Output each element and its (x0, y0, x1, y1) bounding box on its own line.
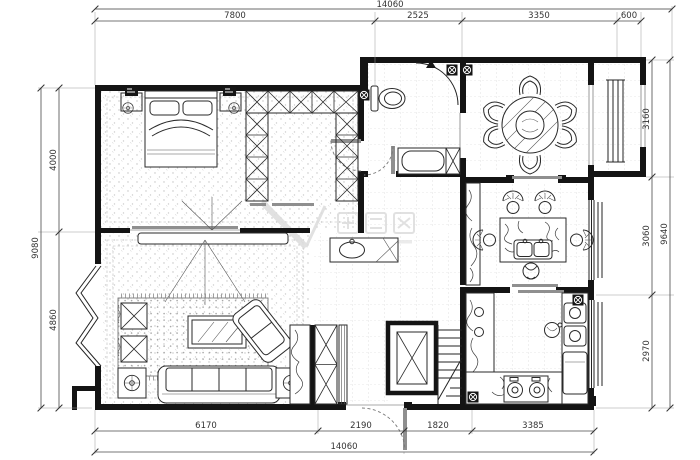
floor-plan-drawing: 14060 7800 2525 3350 600 6170 2190 1820 … (0, 0, 700, 460)
stove (504, 376, 548, 402)
floor-drain-icon (468, 392, 479, 403)
double-bed (145, 91, 217, 167)
floor-drain-icon (447, 65, 458, 76)
floor-drain-icon (573, 295, 584, 306)
dim-bottom: 6170 2190 1820 3385 14060 (92, 410, 598, 455)
dim-label: 3385 (522, 421, 544, 431)
bedroom-floor (101, 91, 358, 228)
refrigerator (563, 352, 587, 394)
island-table (500, 218, 566, 262)
dim-label: 2970 (642, 340, 652, 362)
display-cabinet (290, 325, 310, 404)
dim-label: 2190 (350, 421, 372, 431)
dim-label: 2525 (407, 11, 429, 21)
island-sliding-door (512, 176, 562, 179)
balcony-floor (594, 63, 640, 171)
side-cabinet-marble (466, 183, 480, 285)
dim-label: 3060 (642, 225, 652, 247)
staircase (438, 325, 462, 404)
vanity-sink (330, 238, 398, 262)
dim-label: 14060 (330, 442, 357, 452)
dim-label: 4000 (49, 149, 59, 171)
dim-label: 6170 (195, 421, 217, 431)
bedroom-sliding-door (130, 226, 240, 230)
sofa (158, 366, 280, 403)
dim-label: 7800 (224, 11, 246, 21)
bay-window (76, 264, 103, 366)
foyer-floor (347, 325, 388, 404)
dim-label: 14060 (376, 0, 403, 10)
floor-drain-icon (462, 65, 473, 76)
dim-label: 9640 (660, 223, 670, 245)
dim-label: 3350 (528, 11, 550, 21)
shoe-cabinet (315, 325, 347, 404)
elevator (388, 323, 436, 393)
floor-drain-icon (359, 90, 370, 101)
dim-left: 4000 4860 9080 (31, 85, 95, 412)
kitchen-window (588, 300, 602, 388)
bathtub (398, 148, 460, 174)
dim-label: 3160 (642, 108, 652, 130)
floor-plan-canvas: 14060 7800 2525 3350 600 6170 2190 1820 … (0, 0, 700, 460)
dim-label: 9080 (31, 237, 41, 259)
side-table-lamp-left (118, 368, 146, 398)
dim-label: 600 (621, 11, 637, 21)
dim-label: 1820 (427, 421, 449, 431)
dim-label: 4860 (49, 309, 59, 331)
